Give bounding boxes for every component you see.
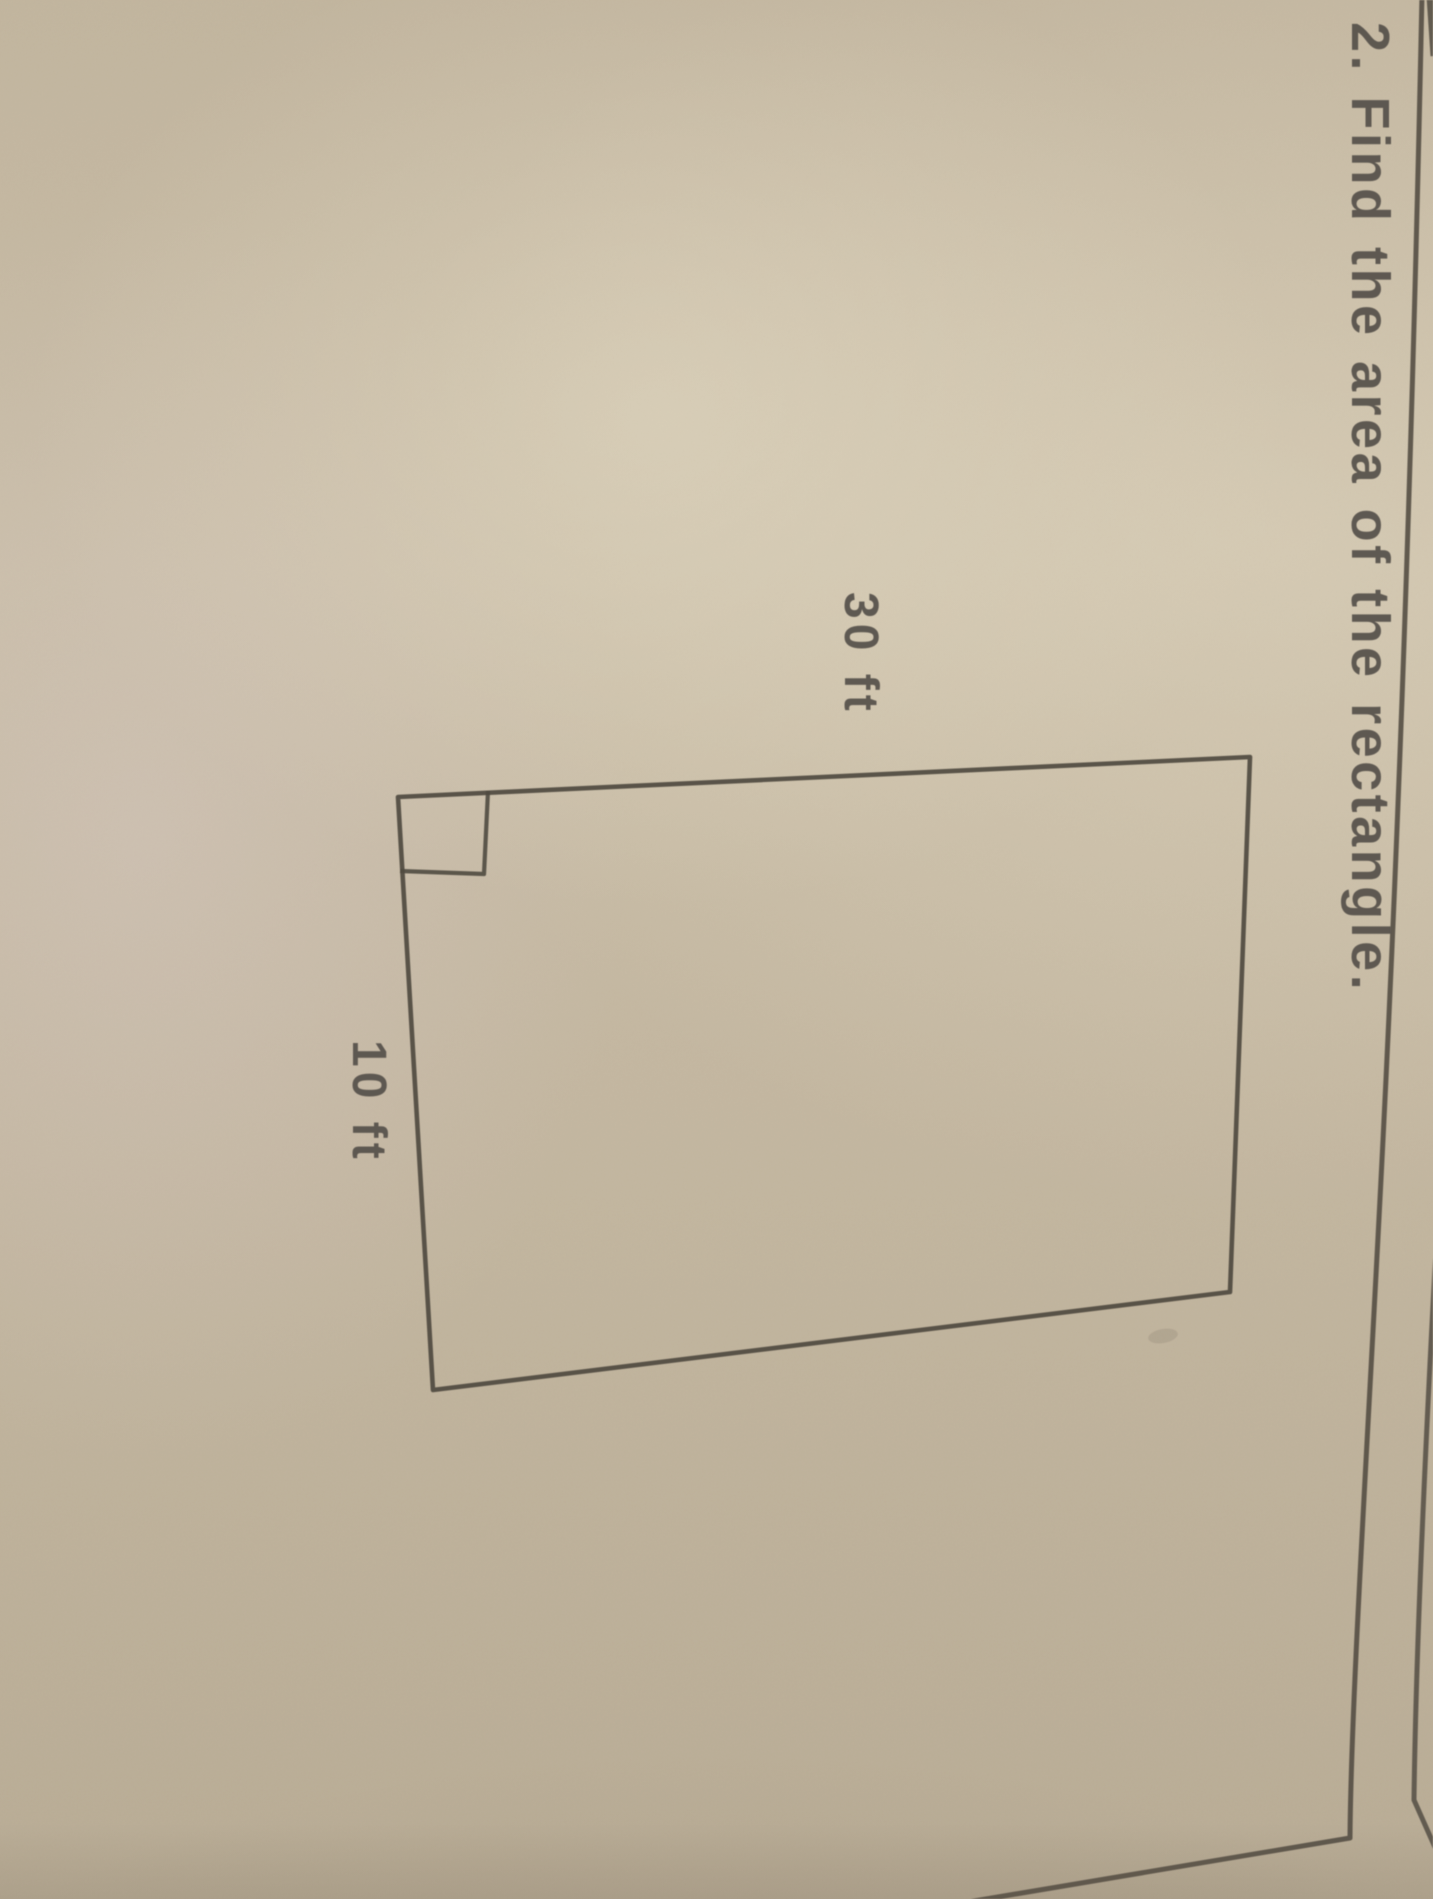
dimension-label-30ft: 30 ft [832, 592, 888, 752]
worksheet-photo: 2. Find the area of the rectangle. 30 ft… [0, 0, 1433, 1899]
dimension-label-10ft: 10 ft [340, 1040, 396, 1190]
figure-drawing-layer [0, 0, 1433, 1899]
paper-grain-texture [0, 0, 1433, 1899]
problem-heading: 2. Find the area of the rectangle. [1339, 22, 1401, 1182]
